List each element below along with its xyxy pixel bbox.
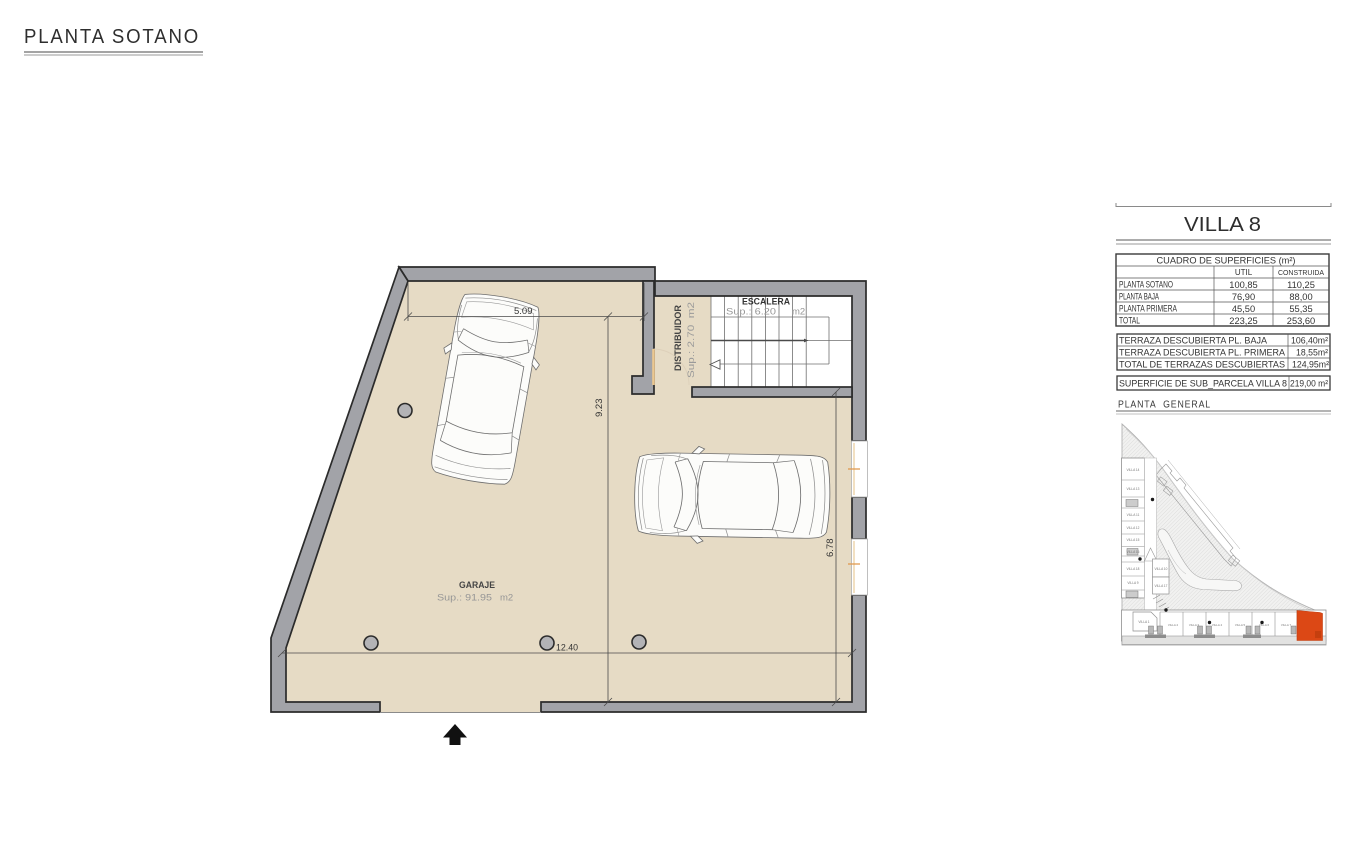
svg-text:m2: m2	[500, 593, 513, 604]
svg-text:VILLA 9: VILLA 9	[1127, 581, 1138, 585]
svg-text:45,50: 45,50	[1232, 304, 1255, 314]
svg-text:12.40: 12.40	[556, 643, 578, 653]
svg-text:100,85: 100,85	[1229, 280, 1257, 290]
svg-text:253,60: 253,60	[1287, 316, 1315, 326]
svg-text:PLANTA SOTANO: PLANTA SOTANO	[24, 25, 200, 48]
svg-text:VILLA 14: VILLA 14	[1127, 468, 1140, 472]
svg-text:223,25: 223,25	[1229, 316, 1257, 326]
svg-text:VILLA 17: VILLA 17	[1155, 584, 1168, 588]
svg-text:VILLA 18: VILLA 18	[1127, 567, 1140, 571]
svg-text:VILLA 16: VILLA 16	[1127, 550, 1140, 554]
svg-text:VILLA 6: VILLA 6	[1259, 623, 1270, 627]
svg-text:VILLA 13: VILLA 13	[1127, 487, 1140, 491]
svg-text:Sup.: 91.95: Sup.: 91.95	[437, 593, 492, 604]
svg-text:219,00 m²: 219,00 m²	[1290, 379, 1328, 389]
svg-text:VILLA 8: VILLA 8	[1184, 213, 1261, 236]
svg-text:GARAJE: GARAJE	[459, 580, 495, 590]
svg-text:VILLA 1: VILLA 1	[1138, 620, 1149, 624]
svg-text:VILLA 15: VILLA 15	[1127, 538, 1140, 542]
svg-text:PLANTA BAJA: PLANTA BAJA	[1119, 292, 1160, 302]
svg-text:PLANTA PRIMERA: PLANTA PRIMERA	[1119, 304, 1178, 314]
svg-text:9.23: 9.23	[594, 399, 605, 418]
svg-text:55,35: 55,35	[1289, 304, 1312, 314]
svg-text:124,95m²: 124,95m²	[1292, 360, 1329, 370]
svg-text:TERRAZA DESCUBIERTA PL. PRIMER: TERRAZA DESCUBIERTA PL. PRIMERA	[1119, 348, 1286, 358]
svg-text:SUPERFICIE DE SUB_PARCELA VILL: SUPERFICIE DE SUB_PARCELA VILLA 8	[1119, 379, 1287, 389]
svg-text:UTIL: UTIL	[1235, 268, 1253, 277]
svg-text:VILLA 7: VILLA 7	[1281, 623, 1292, 627]
svg-text:VILLA 2: VILLA 2	[1168, 623, 1179, 627]
svg-text:6.78: 6.78	[825, 539, 836, 558]
svg-text:DISTRIBUIDOR: DISTRIBUIDOR	[673, 304, 683, 371]
svg-text:18,55m²: 18,55m²	[1296, 348, 1328, 358]
svg-text:TERRAZA DESCUBIERTA PL. BAJA: TERRAZA DESCUBIERTA PL. BAJA	[1119, 336, 1268, 346]
svg-text:110,25: 110,25	[1287, 280, 1315, 290]
svg-text:VILLA 4: VILLA 4	[1212, 623, 1223, 627]
svg-text:ESCALERA: ESCALERA	[742, 297, 790, 307]
svg-text:TOTAL: TOTAL	[1119, 316, 1140, 326]
svg-text:VILLA 10: VILLA 10	[1155, 567, 1168, 571]
svg-text:PLANTA SOTANO: PLANTA SOTANO	[1119, 280, 1173, 290]
svg-text:VILLA 5: VILLA 5	[1235, 623, 1246, 627]
svg-text:88,00: 88,00	[1289, 292, 1312, 302]
svg-text:CUADRO DE SUPERFICIES (m²): CUADRO DE SUPERFICIES (m²)	[1157, 256, 1296, 266]
svg-text:5.09: 5.09	[514, 306, 533, 317]
svg-text:m2: m2	[792, 307, 805, 318]
svg-text:Sup.: 2.70 m2: Sup.: 2.70 m2	[686, 302, 697, 378]
svg-text:TOTAL DE TERRAZAS DESCUBIERTAS: TOTAL DE TERRAZAS DESCUBIERTAS	[1119, 360, 1285, 370]
svg-text:VILLA 12: VILLA 12	[1127, 526, 1140, 530]
svg-text:CONSTRUIDA: CONSTRUIDA	[1278, 268, 1324, 277]
svg-text:PLANTA GENERAL: PLANTA GENERAL	[1118, 400, 1211, 411]
svg-text:106,40m²: 106,40m²	[1291, 336, 1328, 346]
svg-text:Sup.: 6.20: Sup.: 6.20	[726, 307, 776, 318]
svg-text:76,90: 76,90	[1232, 292, 1255, 302]
svg-text:VILLA 11: VILLA 11	[1127, 513, 1140, 517]
